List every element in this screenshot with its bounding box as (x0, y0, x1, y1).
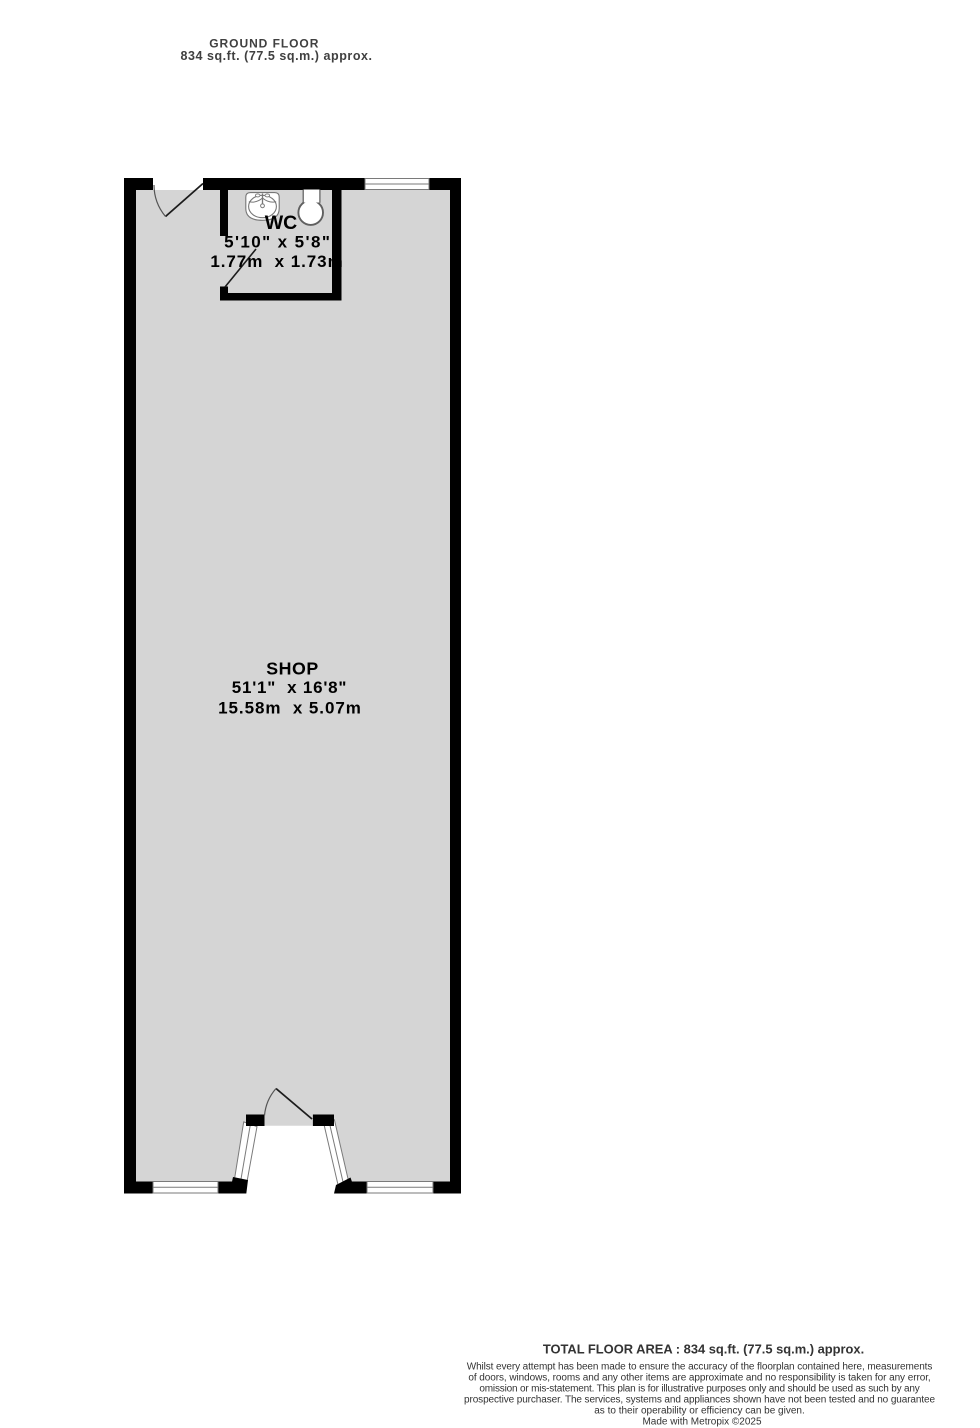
svg-text:as to their operability or eff: as to their operability or efficiency ca… (594, 1406, 805, 1417)
svg-text:1.77m x 1.73m: 1.77m x 1.73m (210, 252, 343, 271)
svg-text:51'1" x 16'8": 51'1" x 16'8" (232, 678, 347, 697)
svg-text:prospective purchaser. The ser: prospective purchaser. The services, sys… (464, 1395, 935, 1406)
svg-text:Whilst every attempt has been: Whilst every attempt has been made to en… (467, 1361, 933, 1372)
svg-text:TOTAL FLOOR AREA : 834 sq.ft.: TOTAL FLOOR AREA : 834 sq.ft. (77.5 sq.m… (543, 1342, 864, 1357)
svg-text:5'10" x 5'8": 5'10" x 5'8" (224, 233, 331, 252)
svg-text:834 sq.ft. (77.5 sq.m.) approx: 834 sq.ft. (77.5 sq.m.) approx. (180, 49, 372, 63)
svg-text:of doors, windows, rooms and a: of doors, windows, rooms and any other i… (468, 1372, 930, 1383)
svg-text:omission or mis-statement. Thi: omission or mis-statement. This plan is … (479, 1383, 919, 1394)
svg-text:SHOP: SHOP (266, 658, 318, 678)
svg-text:Made with Metropix ©2025: Made with Metropix ©2025 (642, 1417, 762, 1428)
svg-text:15.58m x 5.07m: 15.58m x 5.07m (218, 699, 362, 718)
svg-text:WC: WC (265, 212, 298, 234)
